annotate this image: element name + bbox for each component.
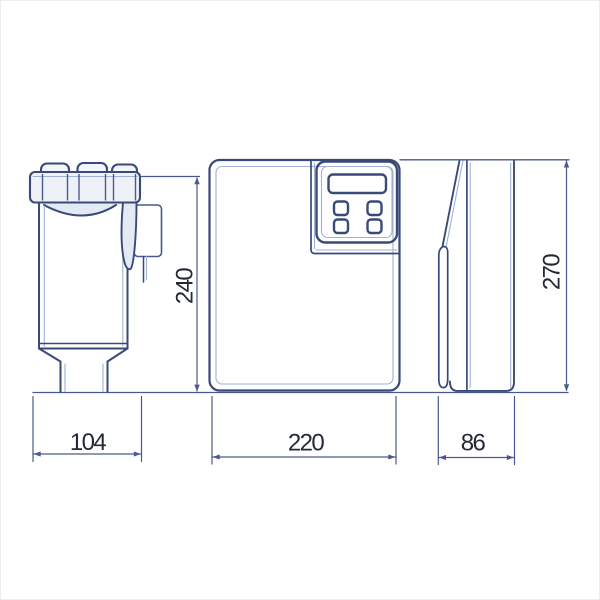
dimension-label-104: 104: [70, 429, 106, 456]
suction-clip: [121, 203, 136, 270]
drawing-page: 240 104: [0, 0, 600, 600]
canister-view: [30, 163, 162, 392]
arrow-down: [194, 385, 199, 392]
dimension-cabinet-height: 270: [400, 160, 569, 391]
front-panel-profile: [439, 247, 448, 388]
technical-drawing: 240 104: [0, 0, 600, 600]
arrow-left: [213, 454, 220, 459]
arrow-down: [564, 384, 569, 391]
side-body-outline: [450, 161, 514, 391]
button: [334, 220, 348, 234]
dimension-label-86: 86: [461, 430, 486, 457]
arrow-right: [507, 455, 514, 460]
button: [368, 202, 382, 216]
arrow-left: [34, 451, 41, 456]
arrow-right: [388, 454, 395, 459]
cabinet-side-view: [439, 161, 514, 391]
dimension-cabinet-depth: 86: [438, 397, 514, 465]
arrow-right: [134, 451, 141, 456]
front-slope-inner: [446, 161, 463, 247]
bottle-neck-left: [39, 349, 61, 393]
button: [334, 202, 348, 216]
cabinet-outline: [210, 160, 400, 391]
mounting-bracket: [134, 205, 162, 257]
button: [368, 220, 382, 234]
arrow-left: [439, 455, 446, 460]
dimension-label-240: 240: [172, 268, 199, 304]
dimension-cabinet-width: 220: [212, 397, 396, 465]
cabinet-front-view: [210, 160, 400, 391]
dimension-label-220: 220: [288, 430, 324, 457]
arrow-up: [564, 161, 569, 168]
display-screen: [329, 175, 387, 194]
arrow-up: [194, 177, 199, 184]
dimension-container-width: 104: [33, 397, 142, 462]
front-slope: [443, 161, 460, 247]
dimension-label-270: 270: [539, 254, 566, 290]
bottle-neck-right: [108, 349, 128, 393]
